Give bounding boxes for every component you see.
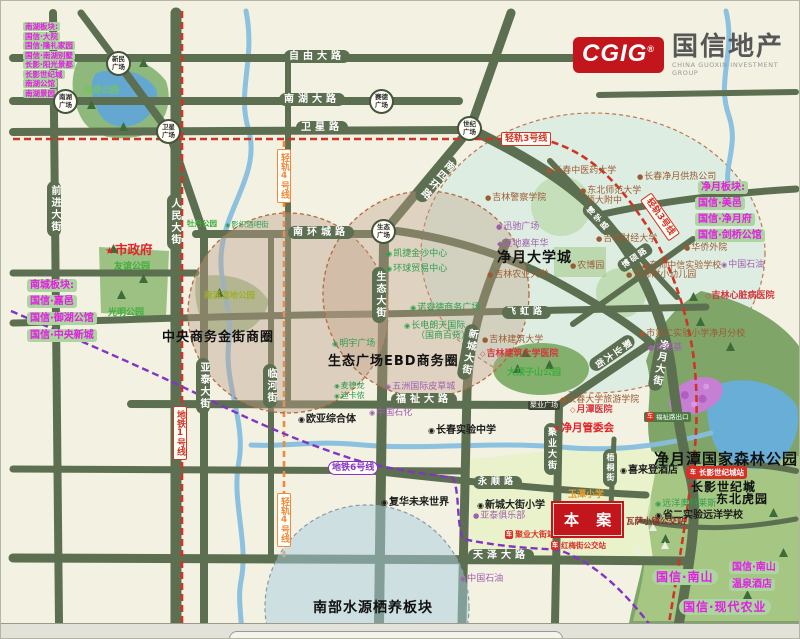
zone-jingyue-univ-town: 净月大学城 <box>497 247 572 267</box>
poi-heart-hospital: ◇吉林心脏病医院 <box>705 288 775 301</box>
block-nanhu-item5: 长影世纪城 <box>23 70 65 79</box>
road-qianjin-dajie: 前进大街 <box>47 181 61 237</box>
poi-petrochina-east: ◉中国石油 <box>721 257 764 270</box>
poi-siberian-tiger-park: 东北虎园 <box>716 490 768 507</box>
poi-jilin-police-college-icon: ● <box>485 193 491 202</box>
block-nancheng-item1: 国信·嘉邑 <box>27 295 77 308</box>
map-stage: CGIG® 国信地产 CHINA GUOXIN INVESTMENT GROUP… <box>0 0 800 639</box>
road-feihong-lu: 飞虹路 <box>502 306 551 319</box>
poi-wuzhou-fur-city: ◉五洲国际皮草城 <box>385 379 455 392</box>
poi-youyi-park: 友谊公园 <box>114 259 150 272</box>
poi-jilin-caijing-univ-icon: ● <box>596 234 602 243</box>
zone-shengtai-ebd: 生态广场EBD商务圈 <box>328 350 459 369</box>
block-nanhu-item7: 南湖景园 <box>23 89 57 98</box>
poi-city-government-icon: ★ <box>105 246 114 257</box>
poi-nanxi-wetland: 南溪湿地公园 <box>204 289 255 301</box>
road-linhe-jie: 临河街 <box>263 364 277 408</box>
stop-hongmei-street-icon: 车 <box>551 541 559 550</box>
block-nanhu-title: 南湖板块: <box>23 22 60 31</box>
project-nanshan-hotel-line1: 国信·南山 <box>729 561 779 574</box>
poi-jianzhu-univ-hospital-icon: ◇ <box>480 349 486 358</box>
bottom-scroll-pill <box>229 631 563 639</box>
poi-petrochina-south-icon: ◉ <box>460 574 466 583</box>
poi-dongshi-fuxiao-kindergarten: ●东师附小幼儿园 <box>626 267 696 280</box>
stop-juye-dajie-icon: 车 <box>505 530 513 539</box>
poi-wuzhou-fur-city-icon: ◉ <box>385 382 391 391</box>
zone-south-water: 南部水源栖养板块 <box>313 597 433 617</box>
road-shengtai-dajie: 生态大街 <box>372 267 386 323</box>
poi-sheraton-hotel-icon: ◉ <box>620 466 627 475</box>
poi-nongboyuan: ●农博园 <box>570 258 604 271</box>
plaza-weixing: 卫星广场 <box>156 119 181 144</box>
plaza-shiji: 世纪广场 <box>457 116 482 141</box>
poi-bar-street-icon: ◉ <box>225 222 230 229</box>
block-jingyue-item2: 国信·净月府 <box>695 213 755 226</box>
poi-kaijie-jinsha-icon: ◉ <box>386 249 392 258</box>
poi-dikanong: ◉迪卡侬 <box>334 390 365 401</box>
south-water-circle <box>265 505 469 639</box>
line-label-lightrail4-top: 轻轨4号线 <box>277 149 291 203</box>
poi-city-government: ★市政府 <box>105 239 152 258</box>
poi-jianzhu-univ-hospital: ◇吉林建筑大学医院 <box>480 346 559 359</box>
poi-ouya-complex-icon: ◉ <box>298 415 305 424</box>
poi-no2-experimental-primary-icon: ● <box>639 329 645 338</box>
plaza-saide: 赛德广场 <box>369 89 394 114</box>
poi-fuzhi-exit: 车福祉路出口 <box>644 412 691 422</box>
plaza-xinmin: 新民广场 <box>106 51 131 76</box>
poi-jingyue-guanweihui-icon: ★ <box>553 423 561 433</box>
cgig-badge: CGIG® <box>573 37 664 73</box>
poi-jingyue-heating-icon: ● <box>637 172 643 181</box>
poi-huaqiao-waiyuan-icon: ● <box>684 243 690 252</box>
poi-guoshang-baihuo: （国商百货） <box>416 328 470 341</box>
company-logo: CGIG® 国信地产 CHINA GUOXIN INVESTMENT GROUP <box>573 33 799 77</box>
poi-shida-fuzhong: 师大附中 <box>586 193 622 206</box>
poi-yutan-primary: 玉潭小学 <box>568 487 604 500</box>
poi-huanqiu-trade-icon: ◉ <box>386 264 392 273</box>
poi-kaijie-jinsha: ◉凯捷金沙中心 <box>386 246 447 259</box>
poi-dikanong-icon: ◉ <box>334 392 340 400</box>
poi-fuhua-future-world-icon: ◉ <box>381 498 388 507</box>
road-yatai-dajie: 亚泰大街 <box>196 358 210 414</box>
poi-petrochina-south: ◉中国石油 <box>460 571 503 584</box>
block-nancheng-title: 南城板块: <box>27 279 77 292</box>
subject-site: 本 案 <box>553 503 622 536</box>
road-ziyou-dalu: 自由大路 <box>284 50 350 63</box>
poi-bar-street: ◉影织酒吧街 <box>225 219 269 230</box>
stop-changying-century-city-icon: 车 <box>689 468 697 477</box>
road-nanhuancheng-lu: 南环城路 <box>288 226 354 239</box>
line-label-metro6: 地铁6号线 <box>328 461 378 475</box>
poi-ccucm-icon: ● <box>546 166 552 175</box>
stop-hongmei-street: 车红梅街公交站 <box>551 540 606 551</box>
registered-mark-icon: ® <box>647 44 655 54</box>
poi-jilin-agri-univ: ●吉林农业大学 <box>487 267 548 280</box>
poi-nanhu-park: 南湖公园 <box>83 83 119 96</box>
poi-jingyue-guanweihui: ★净月管委会 <box>553 420 614 435</box>
poi-yuetan-hospital-icon: ◇ <box>570 405 576 414</box>
poi-mudan-park: 牡丹公园 <box>187 218 217 229</box>
road-fuzhi-dalu-path <box>131 404 551 405</box>
road-weixing-lu-path <box>13 130 463 132</box>
poi-jilin-agri-univ-icon: ● <box>487 270 493 279</box>
block-jingyue-item3: 国信·剑桥公馆 <box>695 229 765 242</box>
stop-juye-dajie: 车聚业大街站 <box>505 529 555 540</box>
line-label-lightrail4-bottom: 轻轨4号线 <box>277 493 291 547</box>
poi-ccu-tourism-college-icon: ● <box>560 395 566 404</box>
poi-yuetan-hospital: ◇月潭医院 <box>570 402 613 415</box>
company-name: 国信地产 <box>672 33 799 61</box>
poi-jilin-caijing-univ: ●吉林财经大学 <box>596 231 657 244</box>
poi-guangming-park: 光明公园 <box>108 305 144 318</box>
line-label-metro1: 地铁1号线 <box>173 406 187 460</box>
plaza-nanhu: 南湖广场 <box>53 89 78 114</box>
poi-nuoruide-icon: ◉ <box>410 303 416 312</box>
block-nanhu-item4: 长影·阳光景都 <box>23 60 75 69</box>
poi-kfc-icon: ● <box>648 343 654 352</box>
poi-changchun-experimental-school: ◉长春实验中学 <box>428 421 496 436</box>
poi-mingyu-plaza-icon: ◉ <box>332 339 338 348</box>
poi-sinopec: ◉中国石化 <box>369 405 412 418</box>
poi-xunchi-plaza-icon: ● <box>496 222 502 231</box>
block-nancheng-item3: 国信·中央新城 <box>27 329 97 342</box>
poi-dongshi-fuxiao-kindergarten-icon: ● <box>626 270 632 279</box>
plaza-juye: 聚业广场 <box>528 401 560 410</box>
stop-vasa-town: 车瓦萨小镇公交站 <box>616 515 686 527</box>
block-jingyue-title: 净月板块: <box>698 181 748 194</box>
poi-ccucm: ●长春中医药大学 <box>546 163 616 176</box>
project-guoxin-modern-agri: 国信·现代农业 <box>679 599 771 615</box>
poi-dadingzishan-park: 大顶子山公园 <box>507 365 561 378</box>
poi-mingyu-plaza: ◉明宇广场 <box>332 336 375 349</box>
road-renmin-dajie: 人民大街 <box>167 194 181 250</box>
poi-nuoruide: ◉诺睿德商务广场 <box>410 300 480 313</box>
poi-jilin-jianzhu-univ-icon: ● <box>482 335 488 344</box>
poi-fuzhi-exit-icon: 车 <box>646 412 654 421</box>
poi-huanqiu-trade: ◉环球贸易中心 <box>386 261 447 274</box>
poi-heart-hospital-icon: ◇ <box>705 291 711 300</box>
block-nanhu-item3: 国信·南湖别墅 <box>23 51 75 60</box>
block-nancheng-item2: 国信·御湖公馆 <box>27 312 97 325</box>
poi-sinopec-icon: ◉ <box>369 408 375 417</box>
poi-petrochina-east-icon: ◉ <box>721 260 727 269</box>
road-wutong-jie: 梧桐街 <box>603 449 617 487</box>
road-tianze-dalu: 天泽大路 <box>468 549 534 562</box>
poi-yatai-club-icon: ● <box>473 511 479 520</box>
poi-changdian-langtian-icon: ◉ <box>404 321 410 330</box>
poi-kfc: ●肯德基 <box>648 340 682 353</box>
block-jingyue-item1: 国信·美邑 <box>695 197 745 210</box>
poi-xincheng-dajie-primary: ◉新城大街小学 <box>477 496 545 511</box>
company-subtitle: CHINA GUOXIN INVESTMENT GROUP <box>672 61 799 77</box>
project-guoxin-nanshan: 国信·南山 <box>652 569 718 585</box>
poi-no2-experimental-primary: ●市第二实验小学净月分校 <box>639 326 745 339</box>
road-weixing-lu: 卫星路 <box>296 121 348 134</box>
block-nanhu-item6: 南湖公馆 <box>23 79 57 88</box>
poi-fuhua-future-world: ◉复华未来世界 <box>381 493 449 508</box>
poi-xunchi-plaza: ●迅驰广场 <box>496 219 539 232</box>
zone-central-business: 中央商务金街商圈 <box>162 326 274 345</box>
project-nanshan-hotel-line2: 温泉酒店 <box>729 578 775 591</box>
poi-maidelong-icon: ◉ <box>334 382 340 390</box>
block-nanhu-item1: 国信·大院 <box>23 32 60 41</box>
road-yongshun-lu: 永顺路 <box>473 476 522 489</box>
line-label-lightrail3: 轻轨3号线 <box>501 132 551 146</box>
plaza-shengtai: 生态广场 <box>371 219 396 244</box>
poi-ouya-complex: ◉欧亚综合体 <box>298 410 356 425</box>
road-nanhu-dalu: 南湖大路 <box>279 93 345 106</box>
stop-changying-century-city: 车长影世纪城站 <box>686 466 747 479</box>
poi-jilin-police-college: ●吉林警察学院 <box>485 190 546 203</box>
poi-jilin-jianzhu-univ: ●吉林建筑大学 <box>482 332 543 345</box>
poi-xincheng-dajie-primary-icon: ◉ <box>477 501 484 510</box>
poi-changchun-experimental-school-icon: ◉ <box>428 426 435 435</box>
map-canvas <box>1 1 800 639</box>
block-nanhu-item2: 国信·隆礼家园 <box>23 41 75 50</box>
